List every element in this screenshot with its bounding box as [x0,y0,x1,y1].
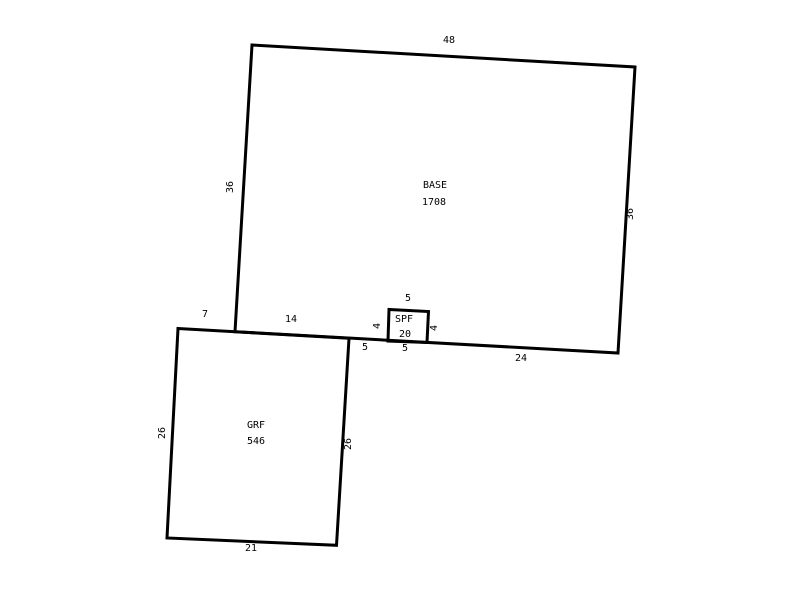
base-dim-bottom-mid-label: 5 [362,343,368,353]
base-dim-top-label: 48 [443,36,455,46]
base-dim-right-label: 36 [626,208,636,220]
base-dim-bottom-right-label: 24 [515,354,527,364]
spf-name-label: SPF [395,315,413,325]
spf-area-label: 20 [399,330,411,340]
base-area-label: 1708 [422,198,446,208]
spf-dim-right-label: 4 [430,325,440,331]
base-dim-left-label: 36 [226,181,236,193]
sketch-outlines [0,0,800,600]
spf-dim-top-label: 5 [405,294,411,304]
grf-dim-left-label: 26 [158,427,168,439]
grf-name-label: GRF [247,421,265,431]
grf-dim-bottom-label: 21 [245,544,257,554]
spf-dim-left-label: 4 [373,323,383,329]
grf-dim-top-label: 7 [202,310,208,320]
spf-dim-bottom-label: 5 [402,344,408,354]
sketch-canvas: 48 36 36 BASE 1708 14 5 24 5 4 4 SPF 20 … [0,0,800,600]
grf-dim-right-label: 26 [344,438,354,450]
grf-area-label: 546 [247,437,265,447]
base-dim-bottom-left-label: 14 [285,315,297,325]
base-name-label: BASE [423,181,447,191]
